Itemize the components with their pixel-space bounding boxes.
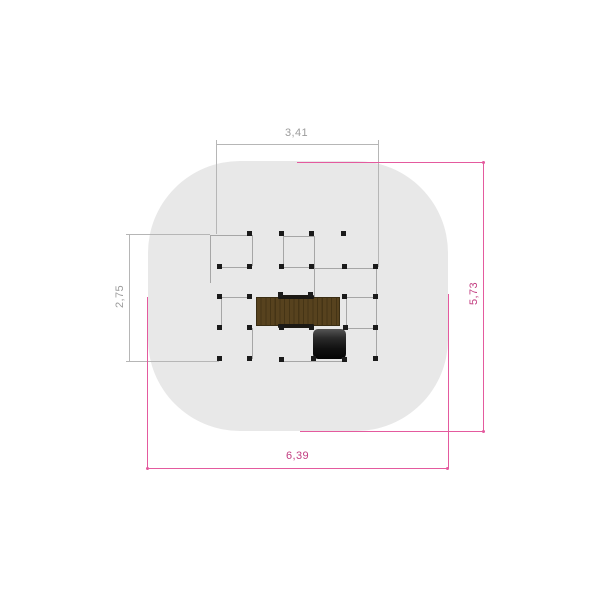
dim-label-zone-width: 6,39 (265, 450, 330, 463)
frame-line (252, 235, 253, 266)
frame-line (210, 235, 252, 236)
crawl-tunnel (313, 329, 346, 359)
post (342, 264, 347, 269)
dimension-end-dot (446, 467, 449, 470)
post (217, 264, 222, 269)
dimension-end-dot (482, 161, 485, 164)
post (217, 325, 222, 330)
frame-line (283, 236, 284, 268)
dimension-line-pink (300, 431, 483, 432)
dimension-line-pink (147, 468, 448, 469)
frame-line (219, 297, 250, 298)
post (308, 292, 313, 297)
post (247, 356, 252, 361)
dimension-end-dot (146, 467, 149, 470)
post (279, 357, 284, 362)
wood-deck-platform (256, 297, 340, 326)
dimension-end-dot (482, 430, 485, 433)
post (279, 325, 284, 330)
frame-line (221, 297, 222, 328)
dimension-line-pink (448, 294, 449, 468)
dim-label-structure-height: 2,75 (114, 264, 127, 329)
post (247, 264, 252, 269)
post (309, 231, 314, 236)
dimension-line-gray (216, 144, 217, 234)
dimension-line-gray (129, 234, 130, 361)
frame-line (210, 235, 211, 283)
frame-line (346, 297, 347, 328)
post (373, 325, 378, 330)
dimension-line-gray (378, 140, 379, 147)
dimension-line-gray (216, 144, 378, 145)
dimension-line-pink (147, 297, 148, 469)
post (341, 231, 346, 236)
frame-line (344, 297, 376, 298)
post (247, 325, 252, 330)
dimension-line-pink (483, 162, 484, 431)
post (279, 231, 284, 236)
dimension-line-gray (129, 361, 219, 362)
post (343, 325, 348, 330)
frame-line (346, 328, 376, 329)
dimension-line-gray (129, 234, 210, 235)
post (279, 264, 284, 269)
post (217, 294, 222, 299)
post (373, 294, 378, 299)
post (247, 294, 252, 299)
frame-line (283, 236, 314, 237)
post (342, 357, 347, 362)
dimension-line-pink (297, 162, 483, 163)
dim-label-structure-width: 3,41 (264, 127, 329, 140)
post (309, 264, 314, 269)
frame-line (252, 328, 253, 359)
dimension-line-gray (216, 140, 217, 147)
dimension-line-gray (126, 234, 133, 235)
post (311, 356, 316, 361)
post (278, 292, 283, 297)
frame-line (376, 268, 377, 359)
playground-plan-drawing: 3,41 2,75 5,73 6,39 (0, 0, 600, 600)
post (342, 294, 347, 299)
post (373, 356, 378, 361)
post (247, 231, 252, 236)
dimension-line-gray (126, 361, 133, 362)
post (309, 325, 314, 330)
dim-label-zone-height: 5,73 (468, 261, 481, 326)
